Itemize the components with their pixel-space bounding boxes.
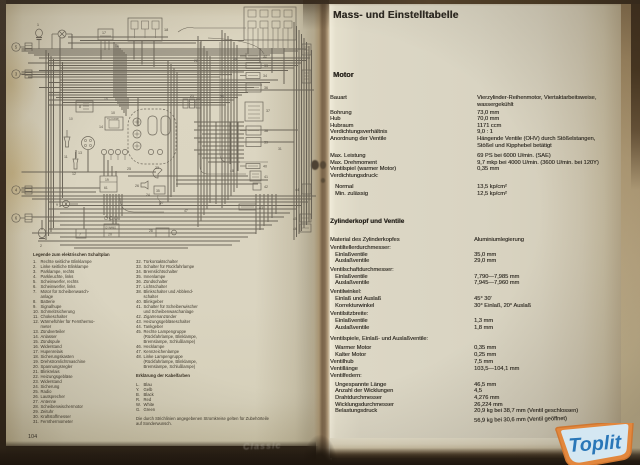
svg-text:Toplit: Toplit bbox=[568, 431, 624, 457]
